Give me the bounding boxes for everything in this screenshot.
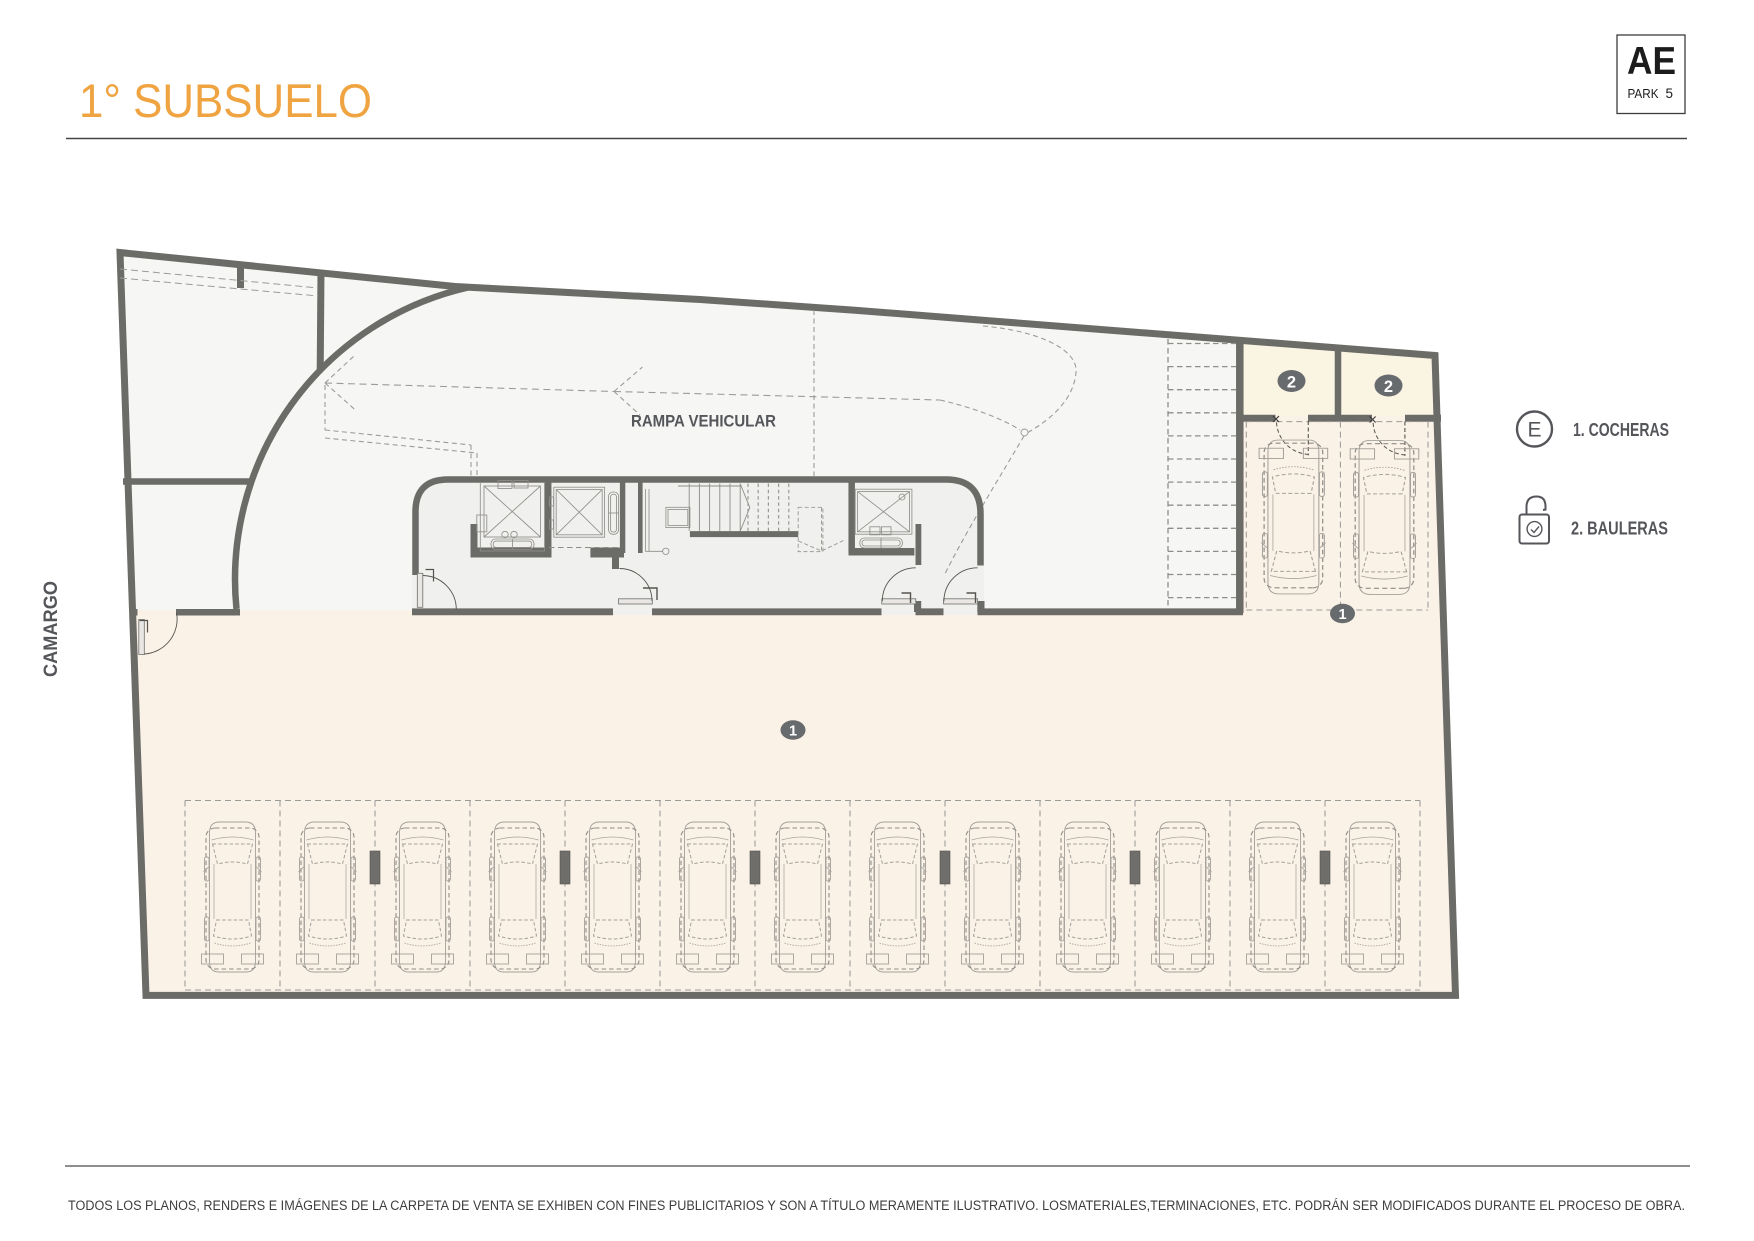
- svg-text:2: 2: [1384, 378, 1393, 396]
- svg-text:5: 5: [1666, 86, 1674, 101]
- svg-text:CAMARGO: CAMARGO: [41, 581, 62, 677]
- svg-text:2: 2: [1287, 373, 1296, 391]
- svg-text:1: 1: [789, 723, 797, 739]
- svg-text:1° SUBSUELO: 1° SUBSUELO: [79, 74, 372, 127]
- svg-text:RAMPA VEHICULAR: RAMPA VEHICULAR: [631, 413, 776, 431]
- svg-text:1: 1: [1338, 607, 1346, 623]
- svg-text:TODOS LOS PLANOS, RENDERS E IM: TODOS LOS PLANOS, RENDERS E IMÁGENES DE …: [68, 1198, 1685, 1213]
- svg-text:PARK: PARK: [1628, 86, 1659, 101]
- svg-text:1. COCHERAS: 1. COCHERAS: [1573, 420, 1669, 440]
- svg-text:AE: AE: [1627, 40, 1676, 83]
- svg-text:E: E: [1527, 419, 1541, 442]
- svg-text:2. BAULERAS: 2. BAULERAS: [1571, 519, 1668, 539]
